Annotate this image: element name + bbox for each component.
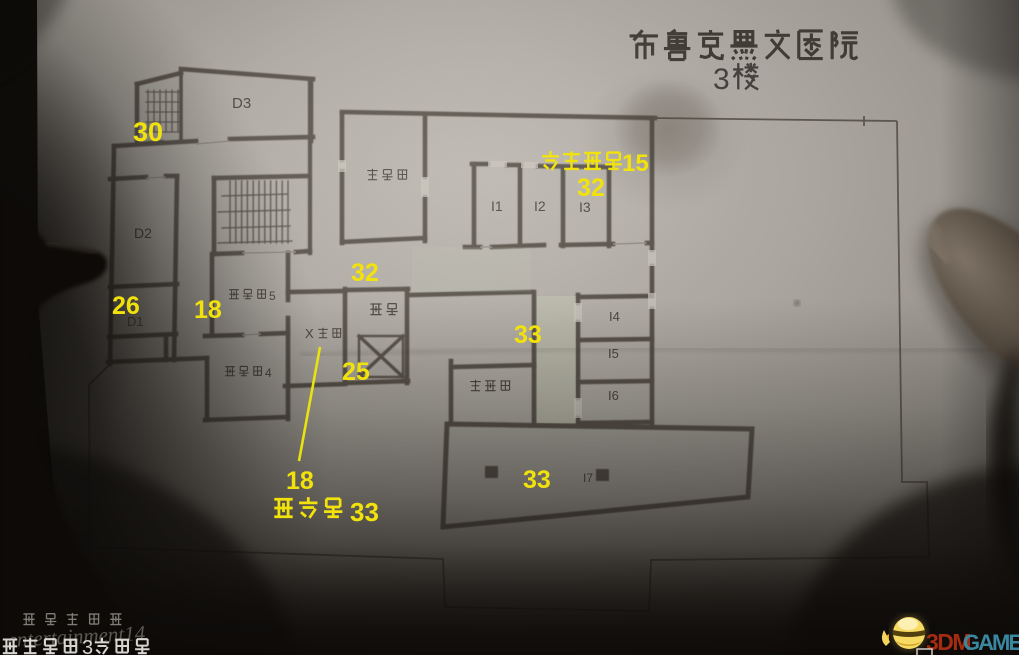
svg-text:33: 33 [514,321,542,349]
svg-text:18: 18 [286,467,314,495]
svg-text:33: 33 [523,466,551,494]
svg-text:18: 18 [194,296,222,324]
svg-text:25: 25 [342,358,370,386]
svg-text:GAME: GAME [963,630,1019,655]
svg-text:32: 32 [351,259,379,287]
svg-text:15: 15 [622,150,649,177]
svg-text:33: 33 [350,497,379,527]
svg-text:26: 26 [112,292,140,320]
svg-text:30: 30 [133,117,163,147]
svg-text:32: 32 [577,174,605,202]
svg-text:3: 3 [82,637,93,655]
